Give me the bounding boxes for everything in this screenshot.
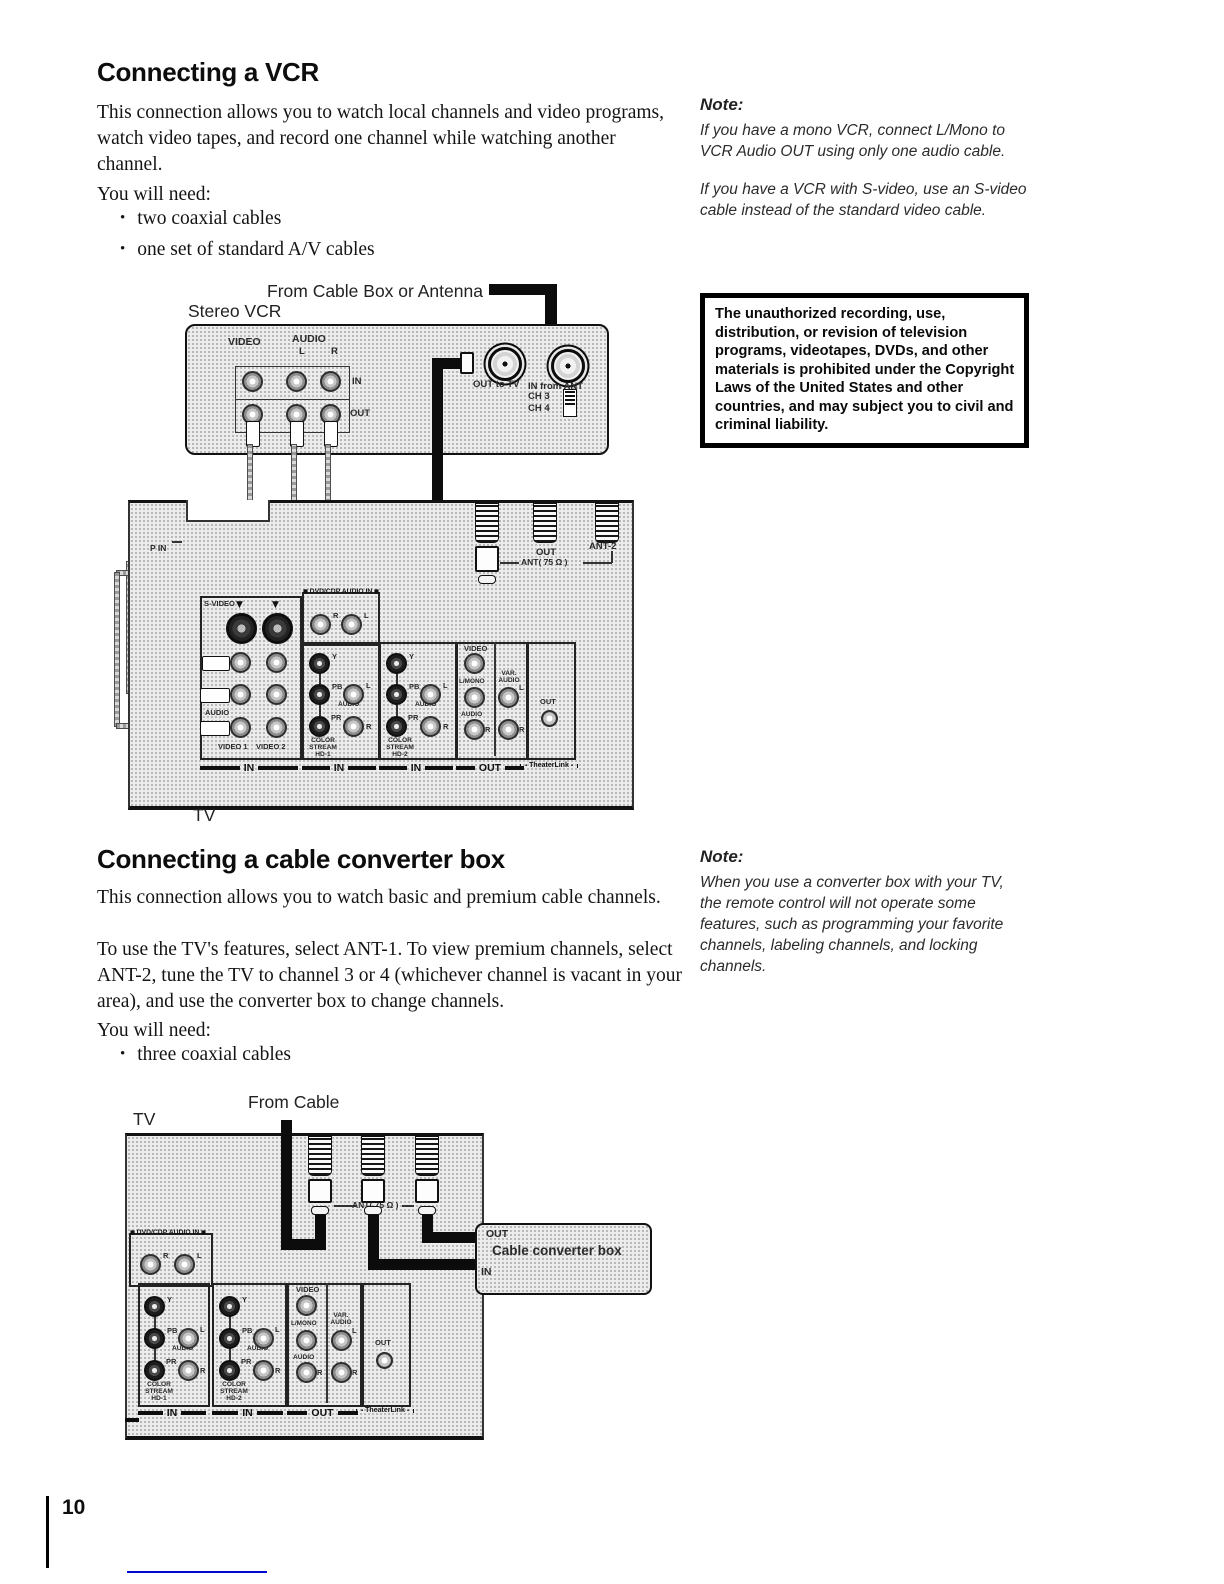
rca-jack-icon	[343, 716, 364, 737]
component-pr-jack-icon	[386, 716, 407, 737]
s-video-label: S-VIDEO	[204, 599, 235, 608]
section-out-bar: OUT	[287, 1407, 358, 1419]
component-y-jack-icon	[219, 1296, 240, 1317]
component-pb-jack-icon	[144, 1328, 165, 1349]
antenna-terminal-icon	[415, 1136, 439, 1176]
rca-plug-icon	[200, 721, 230, 736]
section-in-bar: IN	[212, 1407, 283, 1419]
y-label: Y	[332, 652, 337, 661]
in-label: IN	[163, 1407, 182, 1419]
l-label: L	[352, 1326, 357, 1335]
manual-page: Connecting a VCR This connection allows …	[0, 0, 1224, 1584]
page-number: 10	[62, 1496, 85, 1520]
rca-jack-icon	[266, 684, 287, 705]
pb-label: PB	[409, 682, 419, 691]
diagram2-source-label: From Cable	[248, 1092, 339, 1113]
label-line	[172, 541, 182, 543]
down-arrow-icon: ▼	[272, 600, 279, 610]
coax-cable	[368, 1259, 478, 1270]
diagram2-tv-label: TV	[133, 1109, 155, 1130]
dvd-audio-in-label: DVD/CDP AUDIO IN	[303, 588, 379, 595]
video-label: VIDEO	[464, 644, 487, 653]
in-label: IN	[330, 762, 349, 774]
rca-jack-icon	[420, 716, 441, 737]
rca-jack-icon	[296, 1362, 317, 1383]
antenna-terminal-icon	[595, 503, 619, 543]
note2-para1: When you use a converter box with your T…	[700, 872, 1025, 977]
rca-plug-icon	[200, 688, 230, 703]
rca-jack-icon	[242, 371, 263, 392]
component-pb-jack-icon	[386, 684, 407, 705]
section1-intro: This connection allows you to watch loca…	[97, 100, 685, 178]
coax-cable	[545, 284, 557, 326]
vcr-audio-r-label: R	[331, 346, 338, 357]
l-label: L	[275, 1325, 280, 1334]
vcr-audio-label: AUDIO	[292, 333, 326, 345]
rca-jack-icon	[178, 1328, 199, 1349]
section-in-bar: IN	[379, 762, 453, 774]
r-label: R	[485, 725, 490, 734]
bullet-item: one set of standard A/V cables	[120, 239, 375, 261]
vcr-video-label: VIDEO	[228, 336, 261, 348]
tv-panel-notch	[186, 500, 270, 522]
pb-label: PB	[167, 1326, 177, 1335]
coax-connector-nut-icon	[475, 546, 499, 572]
video2-label: VIDEO 2	[256, 742, 286, 751]
coax-cable	[315, 1215, 326, 1245]
r-label: R	[366, 722, 371, 731]
out-label: OUT	[307, 1407, 337, 1419]
var-audio-label: VAR. AUDIO	[328, 1312, 354, 1326]
note1-para1: If you have a mono VCR, connect L/Mono t…	[700, 120, 1030, 162]
antenna-terminal-icon	[308, 1136, 332, 1176]
vcr-audio-l-label: L	[299, 346, 305, 357]
pr-label: PR	[166, 1357, 176, 1366]
theaterlink-label: TheaterLink	[521, 762, 577, 769]
bullet-item: three coaxial cables	[120, 1044, 291, 1066]
rca-jack-icon	[498, 719, 519, 740]
footer-rule	[46, 1496, 49, 1568]
label-line	[611, 551, 613, 563]
down-arrow-icon: ▼	[236, 600, 243, 610]
section-divider	[494, 642, 496, 756]
rca-jack-icon	[420, 684, 441, 705]
rca-jack-icon	[541, 710, 558, 727]
coax-ring-icon	[364, 1206, 382, 1215]
section-in-bar: IN	[200, 762, 298, 774]
l-label: L	[366, 681, 371, 690]
coax-cable	[489, 284, 551, 295]
r-label: R	[352, 1368, 357, 1377]
diagram1-tv-label: TV	[193, 805, 215, 826]
rca-jack-icon	[464, 719, 485, 740]
coax-connector-nut-icon	[361, 1179, 385, 1203]
audio-label: AUDIO	[205, 708, 229, 717]
out-label: OUT	[475, 762, 505, 774]
section2-bullets: three coaxial cables	[120, 1044, 291, 1075]
r-label: R	[333, 611, 338, 620]
s-video-jack-icon	[226, 613, 257, 644]
y-label: Y	[409, 652, 414, 661]
theaterlink-bar: TheaterLink	[356, 1407, 414, 1414]
rca-jack-icon	[140, 1254, 161, 1275]
label-line	[402, 1205, 414, 1207]
rca-jack-icon	[331, 1362, 352, 1383]
label-line	[583, 562, 612, 564]
l-label: L	[197, 1251, 202, 1260]
vcr-out-label: OUT	[350, 408, 370, 419]
ch4-label: CH 4	[528, 403, 550, 414]
pb-label: PB	[242, 1326, 252, 1335]
component-pr-jack-icon	[309, 716, 330, 737]
rca-jack-icon	[253, 1360, 274, 1381]
note1-title: Note:	[700, 95, 743, 115]
footer-blue-line	[127, 1571, 267, 1573]
colorstream-hd2-label: COLOR STREAM HD-2	[380, 737, 420, 759]
l-label: L	[364, 611, 369, 620]
section2-intro: This connection allows you to watch basi…	[97, 885, 685, 911]
pr-label: PR	[241, 1357, 251, 1366]
rca-jack-icon	[230, 652, 251, 673]
out-label: OUT	[375, 1338, 391, 1347]
coax-cable	[281, 1120, 292, 1250]
component-y-jack-icon	[144, 1296, 165, 1317]
video1-label: VIDEO 1	[218, 742, 248, 751]
rca-jack-icon	[266, 717, 287, 738]
out-label: OUT	[540, 697, 556, 706]
section2-need-label: You will need:	[97, 1018, 211, 1044]
section-in-bar: IN	[302, 762, 376, 774]
s-video-jack-icon	[262, 613, 293, 644]
in-label: IN	[238, 1407, 257, 1419]
section-out-bar: OUT	[456, 762, 524, 774]
coax-cable	[422, 1232, 478, 1243]
rca-jack-icon	[498, 687, 519, 708]
coax-ring-icon	[418, 1206, 436, 1215]
converter-box-label: Cable converter box	[492, 1243, 622, 1258]
section-divider	[326, 1283, 328, 1403]
component-y-jack-icon	[309, 653, 330, 674]
rca-jack-icon	[286, 371, 307, 392]
component-pr-jack-icon	[144, 1360, 165, 1381]
av-cable	[114, 572, 120, 727]
diagram1-source-label: From Cable Box or Antenna	[267, 281, 483, 302]
antenna-terminal-icon	[361, 1136, 385, 1176]
audio-label: AUDIO	[293, 1354, 314, 1361]
rca-jack-icon	[376, 1352, 393, 1369]
rca-plug-icon	[202, 656, 230, 671]
section2-title: Connecting a cable converter box	[97, 844, 505, 875]
in-label: IN	[407, 762, 426, 774]
coax-connector-nut-icon	[415, 1179, 439, 1203]
copyright-warning-box: The unauthorized recording, use, distrib…	[700, 293, 1029, 448]
label-line	[500, 562, 519, 564]
audio-label: AUDIO	[461, 711, 482, 718]
coax-connector-nut-icon	[308, 1179, 332, 1203]
section2-para2: To use the TV's features, select ANT-1. …	[97, 937, 685, 1015]
y-label: Y	[242, 1295, 247, 1304]
rca-jack-icon	[253, 1328, 274, 1349]
rf-out-label: OUT to TV	[473, 379, 519, 390]
section1-title: Connecting a VCR	[97, 57, 319, 88]
component-pb-jack-icon	[309, 684, 330, 705]
pr-label: PR	[331, 713, 341, 722]
pr-label: PR	[408, 713, 418, 722]
section1-need-label: You will need:	[97, 182, 211, 208]
ant75-label: ANT( 75 Ω )	[521, 557, 567, 567]
panel-edge-line	[125, 1418, 139, 1422]
rca-jack-icon	[331, 1330, 352, 1351]
rca-jack-icon	[320, 371, 341, 392]
coax-ring-icon	[311, 1206, 329, 1215]
theaterlink-label: TheaterLink	[357, 1407, 413, 1414]
section1-bullets: two coaxial cables one set of standard A…	[120, 208, 375, 270]
converter-out-label: OUT	[486, 1228, 508, 1240]
tv-pin-label: P IN	[150, 543, 166, 553]
rca-jack-icon	[310, 614, 331, 635]
rca-jack-icon	[266, 652, 287, 673]
rf-out-connector-icon	[488, 347, 522, 381]
note1-para2: If you have a VCR with S-video, use an S…	[700, 179, 1030, 221]
section-in-bar: IN	[138, 1407, 206, 1419]
component-pr-jack-icon	[219, 1360, 240, 1381]
rca-jack-icon	[464, 653, 485, 674]
l-label: L	[443, 681, 448, 690]
diagram1-vcr-label: Stereo VCR	[188, 301, 281, 322]
r-label: R	[317, 1368, 322, 1377]
l-mono-label: L/MONO	[291, 1320, 317, 1327]
vcr-in-label: IN	[352, 376, 362, 387]
rca-jack-icon	[174, 1254, 195, 1275]
antenna-terminal-icon	[475, 503, 499, 543]
rca-jack-icon	[464, 687, 485, 708]
colorstream-hd1-label: COLOR STREAM HD-1	[303, 737, 343, 759]
video-label: VIDEO	[296, 1285, 319, 1294]
y-label: Y	[167, 1295, 172, 1304]
component-pb-jack-icon	[219, 1328, 240, 1349]
r-label: R	[275, 1366, 280, 1375]
rca-jack-icon	[230, 717, 251, 738]
bullet-item: two coaxial cables	[120, 208, 375, 230]
antenna-terminal-icon	[533, 503, 557, 543]
dvd-audio-in-label: DVD/CDP AUDIO IN	[130, 1229, 206, 1236]
rf-in-connector-icon	[551, 349, 585, 383]
r-label: R	[200, 1366, 205, 1375]
in-label: IN	[240, 762, 259, 774]
coax-connector-nut-icon	[460, 352, 474, 374]
r-label: R	[163, 1251, 168, 1260]
theaterlink-bar: TheaterLink	[520, 762, 578, 769]
pb-label: PB	[332, 682, 342, 691]
l-label: L	[200, 1325, 205, 1334]
rca-jack-icon	[178, 1360, 199, 1381]
note2-title: Note:	[700, 847, 743, 867]
rca-jack-icon	[296, 1330, 317, 1351]
coax-ring-icon	[478, 575, 496, 584]
component-y-jack-icon	[386, 653, 407, 674]
rca-jack-icon	[296, 1295, 317, 1316]
r-label: R	[443, 722, 448, 731]
rca-jack-icon	[230, 684, 251, 705]
rca-jack-icon	[341, 614, 362, 635]
ch3-ch4-switch	[563, 389, 577, 417]
colorstream-hd2-label: COLOR STREAM HD-2	[214, 1381, 254, 1403]
rca-jack-icon	[343, 684, 364, 705]
l-label: L	[519, 683, 524, 692]
r-label: R	[519, 725, 524, 734]
converter-in-label: IN	[481, 1266, 492, 1278]
ch3-label: CH 3	[528, 391, 550, 402]
l-mono-label: L/MONO	[459, 678, 485, 685]
colorstream-hd1-label: COLOR STREAM HD-1	[139, 1381, 179, 1403]
